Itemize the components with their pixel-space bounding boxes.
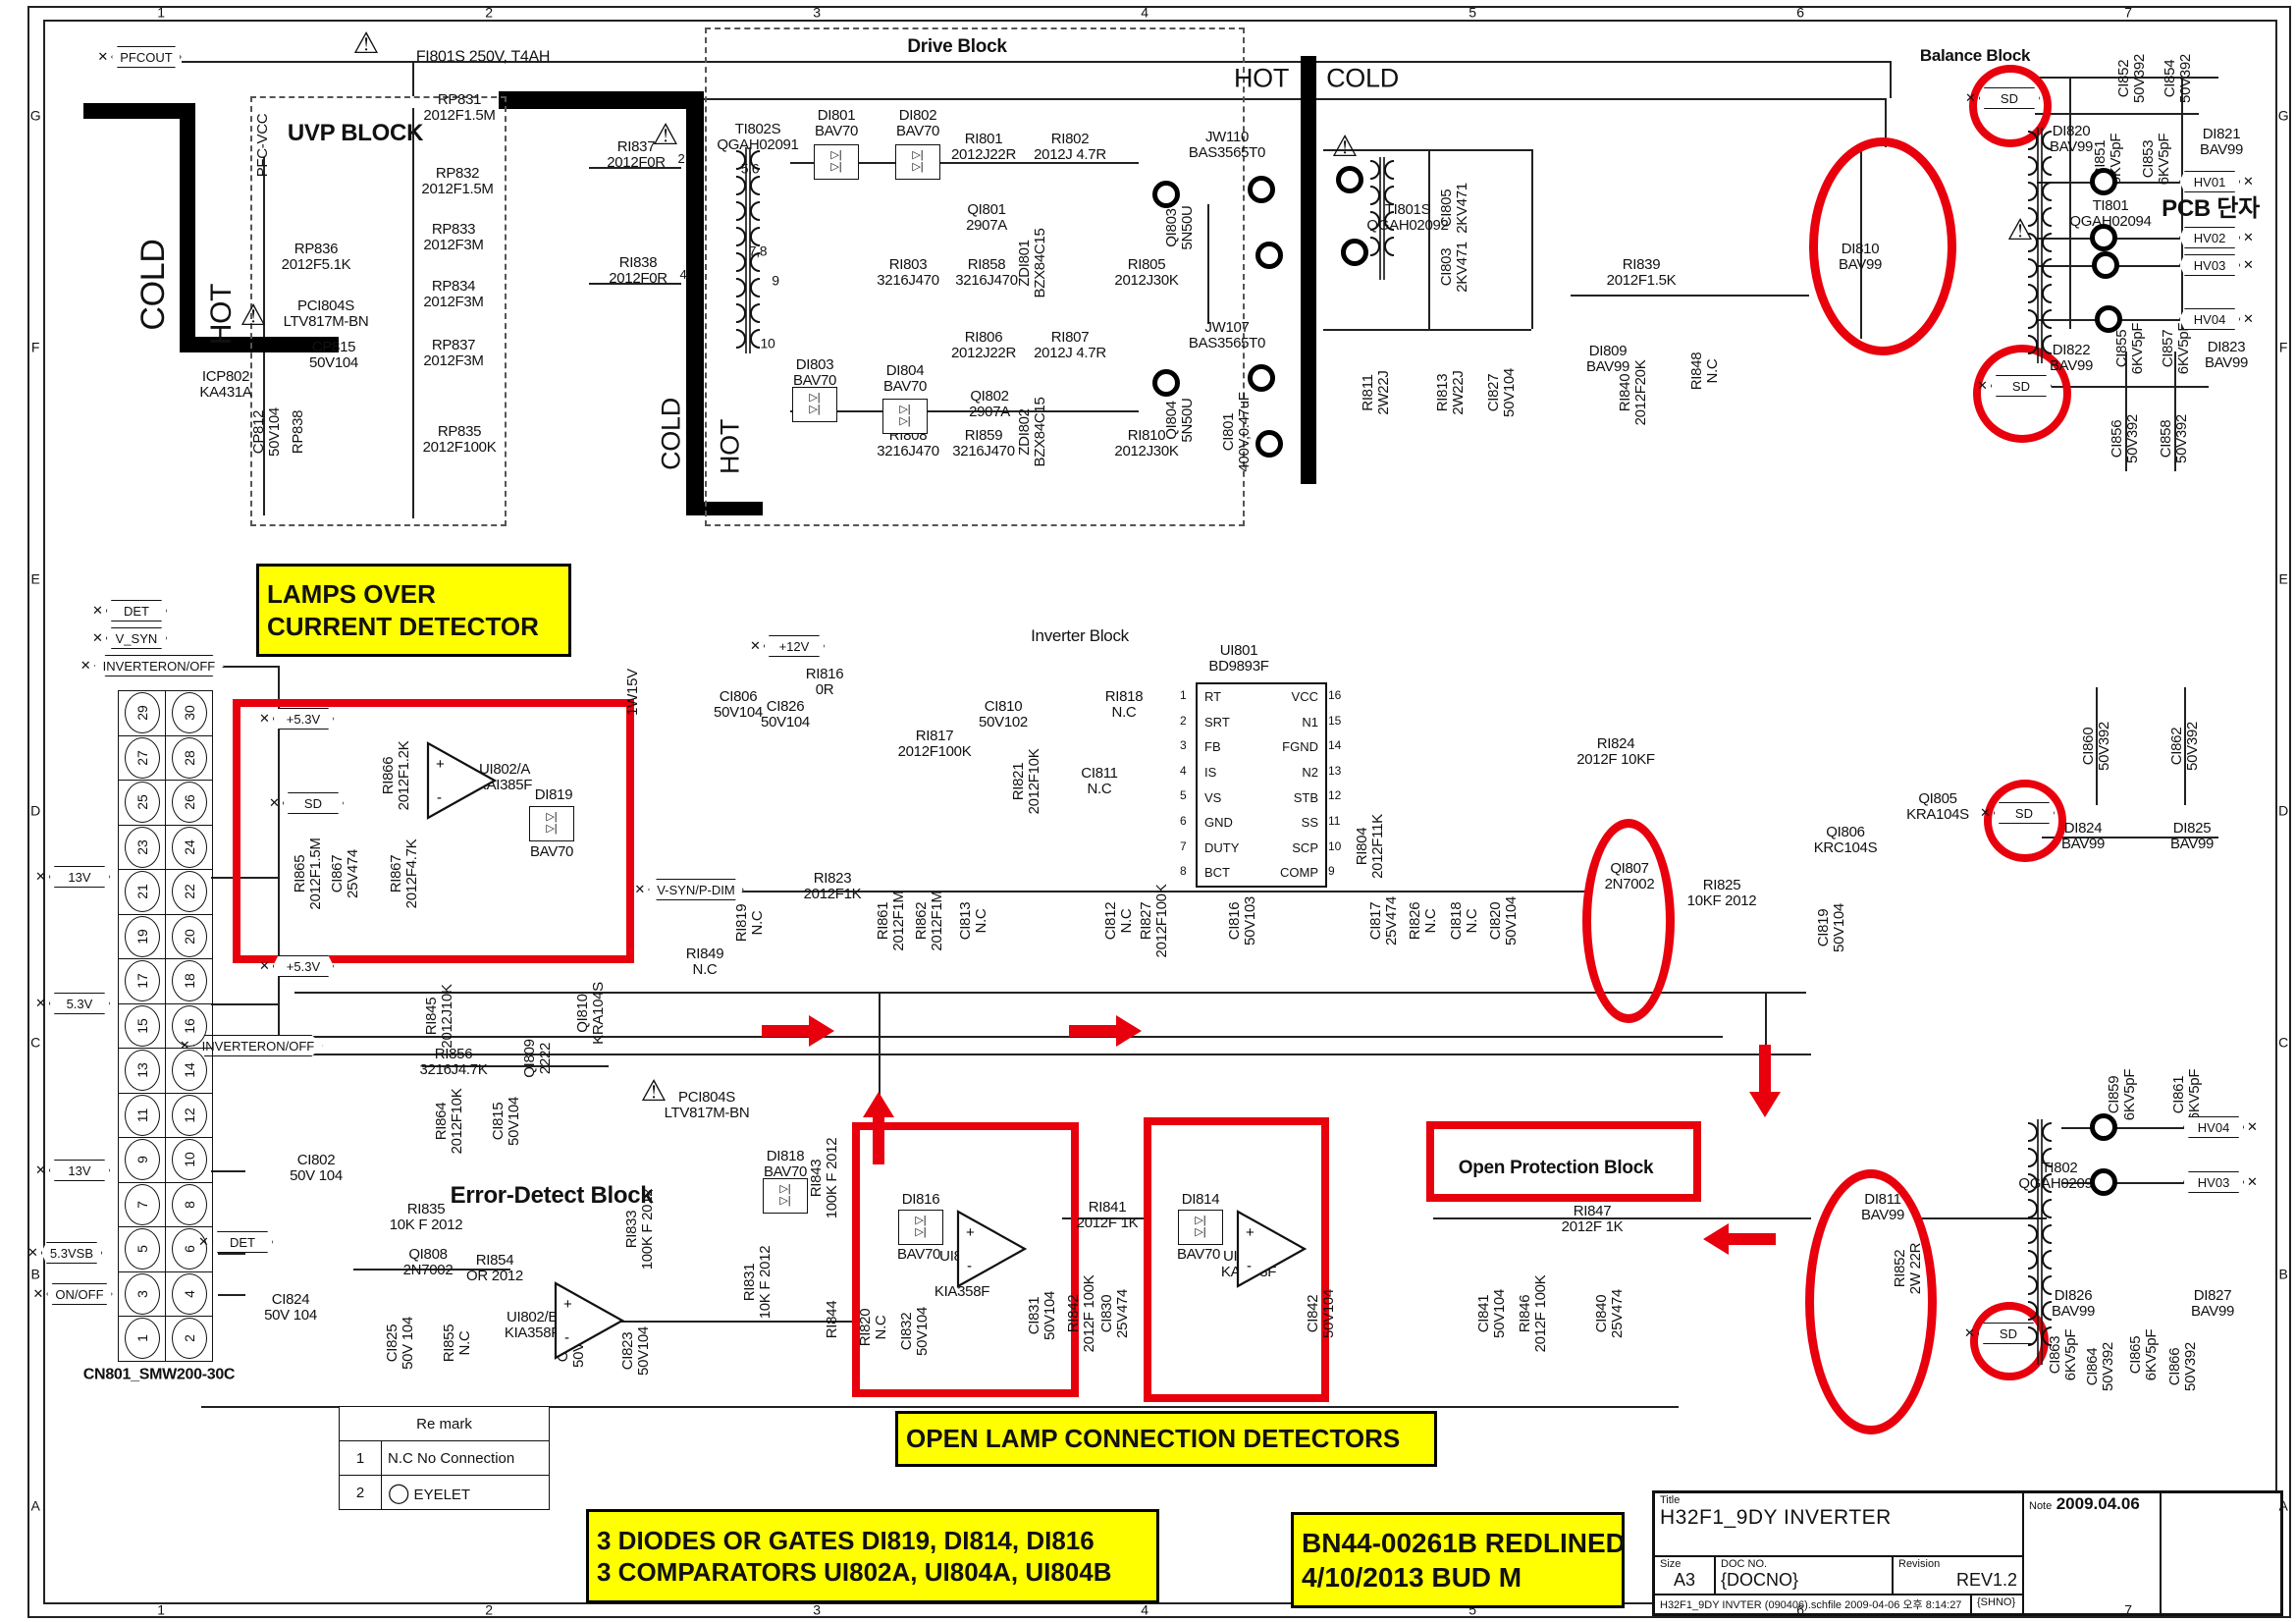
component-label: RI856 3216J4.7K (419, 1047, 487, 1078)
section-label: Error-Detect Block (451, 1183, 654, 1209)
border-row-label: A (2278, 1499, 2287, 1514)
svg-text:-: - (437, 789, 442, 806)
component-label: CI826 50V104 (761, 699, 810, 730)
component-label: CI803 2KV471 (1439, 242, 1470, 293)
component-label: CI840 25V474 (1594, 1289, 1626, 1338)
component-label: CI832 50V104 (899, 1307, 931, 1356)
component-label: QI806 KRC104S (1814, 825, 1878, 856)
ic-pin-number: 12 (1328, 788, 1341, 802)
wire (1571, 295, 1809, 297)
component-label: RP833 2012F3M (423, 222, 483, 253)
component-label: RI802 2012J 4.7R (1034, 132, 1106, 163)
component-label: RI831 10K F 2012 (742, 1246, 774, 1320)
yellow-note: BN44-00261B REDLINED 4/10/2013 BUD M (1291, 1512, 1625, 1608)
eyelet-icon (1152, 181, 1180, 208)
eyelet-icon (1248, 364, 1275, 392)
component-label: RI807 2012J 4.7R (1034, 330, 1106, 361)
eyelet-icon (2090, 168, 2117, 195)
connector-pin: 1 (119, 1317, 166, 1362)
component-label: RI867 2012F4.7K (389, 839, 420, 909)
component-label: QI810 KRA104S (575, 982, 607, 1045)
connector-pin: 11 (119, 1093, 166, 1138)
ic-pin-number: 15 (1328, 714, 1341, 728)
connector-pin: 10 (166, 1138, 213, 1183)
component-label: BAV70 (1177, 1247, 1220, 1263)
signal-flag: ✕5.3V (35, 993, 110, 1014)
border-outer (27, 1616, 2291, 1618)
component-label: RI849 N.C (686, 946, 724, 978)
component-label: CI815 50V104 (491, 1097, 522, 1146)
component-label: RI819 N.C (734, 904, 766, 943)
component-label: DI814 (1182, 1192, 1220, 1208)
ic-pin-number: 3 (1180, 738, 1187, 752)
border-column-label: 5 (1468, 6, 1476, 21)
connector-pin: 12 (166, 1093, 213, 1138)
border-column-label: 2 (485, 6, 493, 21)
remark-header: Re mark (340, 1407, 550, 1441)
component-label: RI823 2012F1K (804, 871, 862, 902)
warning-icon: ⚠ (653, 121, 679, 150)
ic-pin-number: 9 (1328, 864, 1335, 878)
schematic-sheet: Title H32F1_9DY INVERTER Size A3 DOC NO.… (0, 0, 2296, 1622)
section-label: HOT (717, 419, 745, 474)
warning-icon: ⚠ (1332, 133, 1359, 162)
warning-icon: ⚠ (353, 29, 380, 59)
opamp-icon: +- (952, 1208, 1031, 1290)
size-value: A3 (1660, 1570, 1709, 1591)
eyelet-icon (1255, 242, 1283, 269)
component-label: DI810 BAV99 (1839, 242, 1882, 273)
component-label: RI825 10KF 2012 (1687, 878, 1757, 909)
border-row-label: A (30, 1499, 39, 1514)
connector-pin: 26 (166, 781, 213, 826)
component-label: CI802 50V 104 (290, 1153, 343, 1184)
component-label: CI841 50V104 (1476, 1289, 1508, 1338)
component-label: RI858 3216J470 (955, 257, 1018, 289)
ic-pin-number: 6 (1180, 814, 1187, 828)
component-label: QI805 KRA104S (1906, 791, 1969, 823)
svg-text:-: - (564, 1329, 569, 1346)
remark-no: 1 (340, 1441, 382, 1476)
component-label: CI859 6KV5pF (2107, 1069, 2138, 1120)
redline-ellipse (1582, 819, 1675, 1023)
border-row-label: D (2278, 804, 2288, 819)
wire (294, 992, 1806, 994)
component-label: CI820 50V104 (1488, 896, 1520, 946)
component-label: RI804 2012F11K (1355, 814, 1386, 879)
component-label: DI803 BAV70 (793, 357, 836, 389)
signal-flag: ✕DET (92, 600, 167, 622)
component-label: DI816 (902, 1192, 940, 1208)
connector-pin: 20 (166, 914, 213, 959)
eyelet-icon (2092, 251, 2119, 279)
component-label: 4 (680, 268, 687, 282)
connector-pin: 29 (119, 691, 166, 736)
component-label: DI811 BAV99 (1861, 1192, 1904, 1223)
transformer-icon (1362, 157, 1402, 280)
ic-pin-number: 2 (1180, 714, 1187, 728)
component-label: JW107 BAS3565T0 (1189, 320, 1265, 351)
section-label: COLD (658, 398, 686, 470)
section-label: CN801_SMW200-30C (83, 1366, 235, 1382)
wire (2037, 238, 2199, 240)
connector-pin: 17 (119, 959, 166, 1004)
component-label: CI801 400V,0.47uF (1221, 392, 1253, 471)
svg-text:-: - (967, 1258, 972, 1274)
isolation-bar (180, 103, 195, 352)
transformer-icon (2020, 1119, 2059, 1365)
component-label: CI857 6KV5pF (2161, 323, 2192, 374)
section-label: COLD (135, 239, 171, 330)
connector-pin: 22 (166, 870, 213, 915)
component-label: CI824 50V 104 (264, 1292, 317, 1324)
border-outer (2289, 6, 2291, 1618)
connector-pin: 8 (166, 1182, 213, 1227)
opamp-icon: +- (1232, 1208, 1310, 1290)
border-inner (43, 20, 2275, 22)
component-label: CI827 50V104 (1486, 368, 1518, 417)
yellow-note: OPEN LAMP CONNECTION DETECTORS (895, 1411, 1437, 1467)
wire (2035, 113, 2199, 115)
border-row-label: D (30, 804, 40, 819)
border-column-label: 3 (813, 6, 821, 21)
connector-pin: 5 (119, 1227, 166, 1272)
signal-flag: ✕PFCOUT (97, 46, 181, 68)
component-label: RI852 2W 22R (1893, 1243, 1924, 1294)
border-column-label: 4 (1141, 1603, 1148, 1618)
component-label: QI803 5N50U (1164, 205, 1196, 249)
border-row-label: B (2278, 1268, 2287, 1282)
section-label: FI801S 250V, T4AH (416, 48, 550, 65)
component-label: ICP802 KA431A (199, 369, 251, 401)
component-label: DI819 (535, 787, 573, 803)
dual-diode-icon: ▷|▷| (1178, 1210, 1223, 1245)
component-label: CI842 50V104 (1306, 1289, 1337, 1338)
signal-flag: ✕SD (1965, 87, 2040, 109)
signal-flag: HV03✕ (2179, 254, 2254, 276)
svg-text:+: + (1246, 1224, 1255, 1241)
svg-text:+: + (436, 756, 445, 773)
component-label: DI818 BAV70 (764, 1149, 807, 1180)
component-label: RI818 N.C (1105, 689, 1144, 721)
component-label: RI835 10K F 2012 (390, 1202, 463, 1233)
dual-diode-icon: ▷|▷| (814, 144, 859, 180)
wire (849, 1054, 1811, 1055)
component-label: RI846 2012F 100K (1518, 1275, 1549, 1353)
component-label: RI824 2012F 10KF (1576, 736, 1655, 768)
connector-pin: 9 (119, 1138, 166, 1183)
eyelet-icon (2090, 224, 2117, 251)
signal-flag: ✕+12V (750, 635, 825, 657)
component-label: CI861 6KV5pF (2171, 1069, 2203, 1120)
component-label: RI855 N.C (442, 1325, 473, 1363)
component-label: RI845 2012J10K (424, 984, 455, 1048)
border-column-label: 3 (813, 1603, 821, 1618)
connector-pin: 21 (119, 870, 166, 915)
border-outer (27, 6, 29, 1618)
remark-desc: ◯ EYELET (382, 1476, 550, 1510)
component-label: 2 (678, 152, 685, 166)
component-label: CI831 50V104 (1027, 1291, 1058, 1340)
border-column-label: 7 (2124, 6, 2132, 21)
component-label: CI862 50V392 (2169, 722, 2201, 771)
component-label: CI817 25V474 (1368, 896, 1400, 946)
eyelet-icon (1255, 430, 1283, 458)
component-label: JW110 BAS3565T0 (1189, 130, 1265, 161)
connector-pin: 7 (119, 1182, 166, 1227)
wire (1531, 149, 1533, 329)
border-row-label: E (2278, 572, 2287, 587)
component-label: RI826 N.C (1408, 902, 1439, 941)
component-label: RI805 2012J30K (1114, 257, 1178, 289)
svg-text:+: + (563, 1296, 572, 1313)
component-label: CI852 50V392 (2116, 54, 2148, 103)
connector-pin: 4 (166, 1271, 213, 1317)
border-column-label: 2 (485, 1603, 493, 1618)
docno-value: {DOCNO} (1721, 1570, 1887, 1591)
ic-pin-number: 14 (1328, 738, 1341, 752)
note-date: 2009.04.06 (2056, 1494, 2140, 1513)
component-label: RI806 2012J22R (951, 330, 1016, 361)
border-column-label: 6 (1796, 1603, 1804, 1618)
component-label: RI848 N.C (1689, 352, 1721, 391)
title-block: Title H32F1_9DY INVERTER Size A3 DOC NO.… (1652, 1490, 2283, 1616)
yellow-note: LAMPS OVER CURRENT DETECTOR (256, 564, 571, 657)
border-column-label: 1 (157, 6, 165, 21)
component-label: 1W15V (625, 669, 641, 716)
component-label: ZDI802 BZX84C15 (1017, 398, 1048, 467)
border-row-label: C (30, 1036, 40, 1051)
signal-flag: HV04✕ (2179, 308, 2254, 330)
component-label: UI801 BD9893F (1208, 643, 1268, 675)
component-label: CI805 2KV471 (1439, 183, 1470, 234)
component-label: QI807 2N7002 (1605, 861, 1655, 892)
wire (412, 61, 414, 96)
dual-diode-icon: ▷|▷| (763, 1178, 808, 1214)
component-label: RI833 100K F 2012 (624, 1189, 656, 1271)
border-column-label: 1 (157, 1603, 165, 1618)
section-label: Inverter Block (1031, 627, 1129, 645)
component-label: CI855 6KV5pF (2114, 323, 2146, 374)
section-label: COLD (1326, 65, 1399, 93)
component-label: CI810 50V102 (979, 699, 1028, 730)
docno-cell: DOC NO. {DOCNO} (1715, 1556, 1893, 1595)
component-label: ZDI801 BZX84C15 (1017, 229, 1048, 298)
connector-pin: 13 (119, 1049, 166, 1094)
revision-cell: Revision REV1.2 (1893, 1556, 2023, 1595)
title-label: Title (1660, 1494, 2017, 1506)
border-row-label: F (2279, 341, 2287, 355)
component-label: PCI804S LTV817M-BN (284, 298, 369, 330)
ic-pin-number: 13 (1328, 764, 1341, 778)
warning-icon: ⚠ (641, 1077, 667, 1107)
component-label: RI816 0R (806, 667, 844, 698)
section-label: PCB 단자 (2162, 196, 2260, 222)
signal-flag: ✕13V (35, 866, 110, 888)
component-label: CI830 25V474 (1099, 1289, 1131, 1338)
component-label: RI803 3216J470 (877, 257, 939, 289)
signal-flag: ✕V_SYN (92, 627, 167, 649)
connector-pin: 28 (166, 735, 213, 781)
component-label: RI801 2012J22R (951, 132, 1016, 163)
border-column-label: 6 (1796, 6, 1804, 21)
section-label: Open Protection Block (1459, 1159, 1654, 1178)
component-label: CI858 50V392 (2159, 414, 2190, 463)
signal-flag: ✕13V (35, 1160, 110, 1181)
signal-flag: ✕5.3VSB (27, 1242, 102, 1264)
wire (609, 1321, 852, 1323)
connector-pin: 24 (166, 825, 213, 870)
border-row-label: E (30, 572, 39, 587)
dual-diode-icon: ▷|▷| (792, 387, 837, 422)
signal-flag: ✕SD (1980, 802, 2055, 824)
component-label: RI813 2W22J (1435, 370, 1467, 414)
redline-ellipse (1809, 137, 1956, 355)
component-label: CI856 50V392 (2109, 414, 2141, 463)
component-label: QI804 5N50U (1164, 398, 1196, 442)
connector-pin: 15 (119, 1003, 166, 1049)
signal-flag: ✕+5.3V (259, 708, 334, 730)
component-label: PFC-VCC (255, 114, 271, 178)
wire (211, 1003, 278, 1005)
component-label: RP838 (291, 410, 306, 454)
note-cell: Note 2009.04.06 (2023, 1492, 2161, 1614)
svg-text:+: + (966, 1224, 975, 1241)
signal-flag: ✕SD (1977, 375, 2052, 397)
component-label: DI804 BAV70 (883, 363, 927, 395)
revision-value: REV1.2 (1898, 1570, 2017, 1591)
section-label: HOT (1234, 65, 1289, 93)
signal-flag: HV01✕ (2179, 171, 2254, 192)
component-label: RP835 2012F100K (423, 424, 497, 456)
component-label: RI811 2W22J (1361, 370, 1392, 414)
signal-flag: ✕ON/OFF (32, 1283, 112, 1305)
connector-pin: 19 (119, 914, 166, 959)
component-label: CP815 50V104 (309, 340, 358, 371)
component-label: CI864 50V392 (2085, 1342, 2116, 1391)
border-inner (2275, 20, 2277, 1602)
eyelet-icon (1336, 166, 1363, 193)
section-label: HOT (206, 284, 238, 345)
note-label: Note (2029, 1500, 2052, 1512)
connector-pin: 14 (166, 1049, 213, 1094)
component-label: CI818 N.C (1449, 902, 1480, 941)
revision-label: Revision (1898, 1558, 2017, 1570)
component-label: DI827 BAV99 (2191, 1288, 2234, 1320)
component-label: RI864 2012F10K (434, 1089, 465, 1155)
component-label: CI813 N.C (958, 902, 989, 941)
eyelet-icon (2090, 1113, 2117, 1141)
border-outer (27, 6, 2291, 8)
component-label: QI801 2907A (966, 202, 1007, 234)
component-label: BAV70 (530, 844, 573, 860)
wire (294, 1036, 1723, 1038)
wire (211, 1170, 245, 1172)
component-label: RI842 2012F 100K (1066, 1275, 1097, 1353)
component-label: CI825 50V 104 (385, 1317, 416, 1370)
wire (1323, 329, 1531, 331)
component-label: DI801 BAV70 (815, 108, 858, 139)
border-row-label: G (30, 109, 41, 124)
component-label: RI861 2012F1M (876, 891, 907, 950)
component-label: RP837 2012F3M (423, 338, 483, 369)
component-label: RI859 3216J470 (952, 428, 1015, 460)
yellow-note: 3 DIODES OR GATES DI819, DI814, DI816 3 … (586, 1509, 1159, 1603)
component-label: RI854 OR 2012 (466, 1253, 523, 1284)
eyelet-icon (2095, 305, 2122, 333)
wire (218, 1294, 245, 1296)
component-label: CI860 50V392 (2081, 722, 2112, 771)
component-label: QI809 2222 (522, 1039, 554, 1077)
signal-flag: ✕V-SYN/P-DIM (634, 879, 743, 900)
component-label: DI821 BAV99 (2200, 127, 2243, 158)
component-label: CI812 N.C (1103, 902, 1135, 941)
component-label: RI841 2012F 1K (1077, 1200, 1139, 1231)
component-label: RI838 2012F0R (609, 255, 667, 287)
empty-cell (2161, 1492, 2281, 1614)
component-label: CI867 25V474 (330, 849, 361, 898)
component-label: RI820 N.C (858, 1309, 889, 1347)
signal-flag: HV02✕ (2179, 227, 2254, 248)
isolation-bar (83, 103, 189, 119)
isolation-bar (499, 91, 704, 109)
connector-pin: 25 (119, 781, 166, 826)
component-label: BAV70 (897, 1247, 940, 1263)
connector-pin: 2 (166, 1317, 213, 1362)
component-label: RI821 2012F10K (1011, 749, 1042, 815)
connector-pin: 6 (166, 1227, 213, 1272)
wire (218, 1253, 245, 1255)
ic-pin-number: 16 (1328, 688, 1341, 702)
ic-ui801: RTVCCSRTN1FBFGNDISN2VSSTBGNDSSDUTYSCPBCT… (1196, 682, 1327, 888)
component-label: RI847 2012F 1K (1562, 1204, 1624, 1235)
docno-label: DOC NO. (1721, 1558, 1887, 1570)
section-label: UVP BLOCK (288, 121, 423, 146)
connector-pin: 30 (166, 691, 213, 736)
isolation-bar (686, 91, 704, 515)
connector-pin: 3 (119, 1271, 166, 1317)
connector-pin: 16 (166, 1003, 213, 1049)
ic-pin-number: 5 (1180, 788, 1187, 802)
border-row-label: G (2278, 109, 2289, 124)
component-label: RI843 100K F 2012 (809, 1138, 840, 1219)
remark-table: Re mark1N.C No Connection2◯ EYELET (339, 1406, 550, 1510)
component-label: RI817 2012F100K (898, 729, 972, 760)
connector-pin: 18 (166, 959, 213, 1004)
component-label: QI802 2907A (969, 389, 1010, 420)
component-label: PCI804S LTV817M-BN (665, 1090, 750, 1121)
section-label: Drive Block (907, 37, 1006, 57)
component-label: RI844 (825, 1301, 840, 1339)
remark-no: 2 (340, 1476, 382, 1510)
component-label: CI865 6KV5pF (2128, 1329, 2160, 1380)
file-cell: H32F1_9DY INVTER (090406).schfile 2009-0… (1654, 1595, 1971, 1614)
component-label: CI816 50V103 (1227, 896, 1258, 946)
ic-pin-number: 7 (1180, 839, 1187, 853)
signal-flag: HV03✕ (2183, 1171, 2258, 1193)
transformer-icon (2020, 128, 2059, 363)
component-label: RI839 2012F1.5K (1607, 257, 1677, 289)
component-label: RI866 2012F1.2K (381, 741, 412, 811)
size-label: Size (1660, 1558, 1709, 1570)
component-label: RP836 2012F5.1K (282, 242, 351, 273)
doc-title: H32F1_9DY INVERTER (1660, 1506, 2017, 1530)
ic-pin-number: 4 (1180, 764, 1187, 778)
signal-flag: ✕+5.3V (259, 955, 334, 977)
ic-pin-number: 10 (1328, 839, 1341, 853)
component-label: CI819 50V104 (1816, 903, 1847, 952)
remark-desc: N.C No Connection (382, 1441, 550, 1476)
